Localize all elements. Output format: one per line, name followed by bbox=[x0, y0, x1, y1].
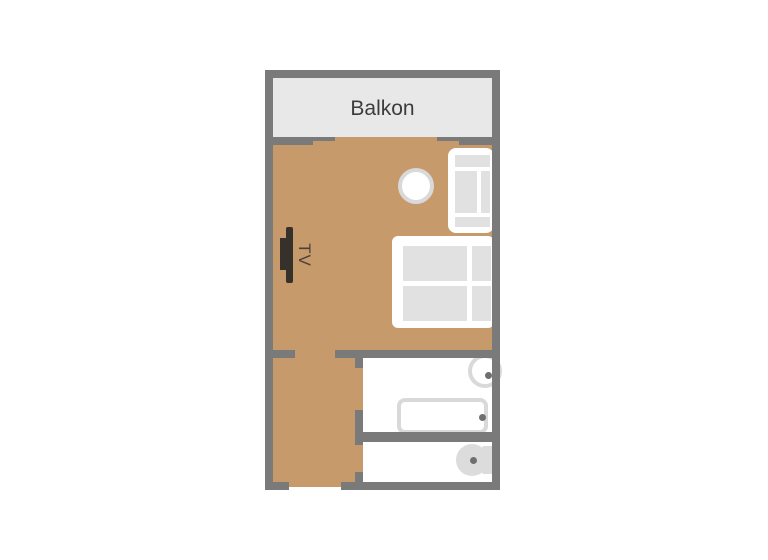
bed-pillow bbox=[472, 286, 491, 321]
tv-label: TV bbox=[294, 233, 314, 277]
tv-icon bbox=[286, 227, 293, 283]
balcony-wall-right bbox=[459, 137, 500, 145]
sink-drain-dot bbox=[485, 372, 492, 379]
armchair-cushion bbox=[455, 155, 490, 167]
wall-top bbox=[265, 70, 500, 78]
wall-bottom-left bbox=[265, 482, 289, 490]
armchair-cushion bbox=[455, 171, 477, 213]
bathtub-icon bbox=[397, 398, 488, 434]
armchair-cushion bbox=[481, 171, 490, 213]
balcony-wall-left-thin bbox=[313, 137, 335, 141]
bed-pillow bbox=[472, 246, 491, 281]
room-wall-right bbox=[335, 350, 492, 358]
room-wall-left-stub bbox=[273, 350, 295, 358]
hall-divider-wall-bottom bbox=[355, 472, 363, 482]
round-table bbox=[398, 168, 434, 204]
armchair-cushion bbox=[455, 217, 490, 227]
toilet-dot bbox=[470, 457, 477, 464]
balcony-label: Balkon bbox=[273, 97, 492, 123]
balcony-wall-right-thin bbox=[437, 137, 459, 141]
bed-mattress bbox=[403, 246, 467, 281]
bathtub-drain-dot bbox=[479, 414, 486, 421]
balcony-wall-left bbox=[265, 137, 313, 145]
wall-bottom-right bbox=[341, 482, 500, 490]
wall-left bbox=[265, 70, 273, 490]
hall-divider-wall-top bbox=[355, 358, 363, 368]
entrance-door-opening bbox=[289, 482, 341, 487]
bathroom-divider-wall bbox=[355, 432, 492, 442]
floor-plan: TV Balkon bbox=[0, 0, 768, 560]
wall-right bbox=[492, 70, 500, 490]
bed-mattress bbox=[403, 286, 467, 321]
